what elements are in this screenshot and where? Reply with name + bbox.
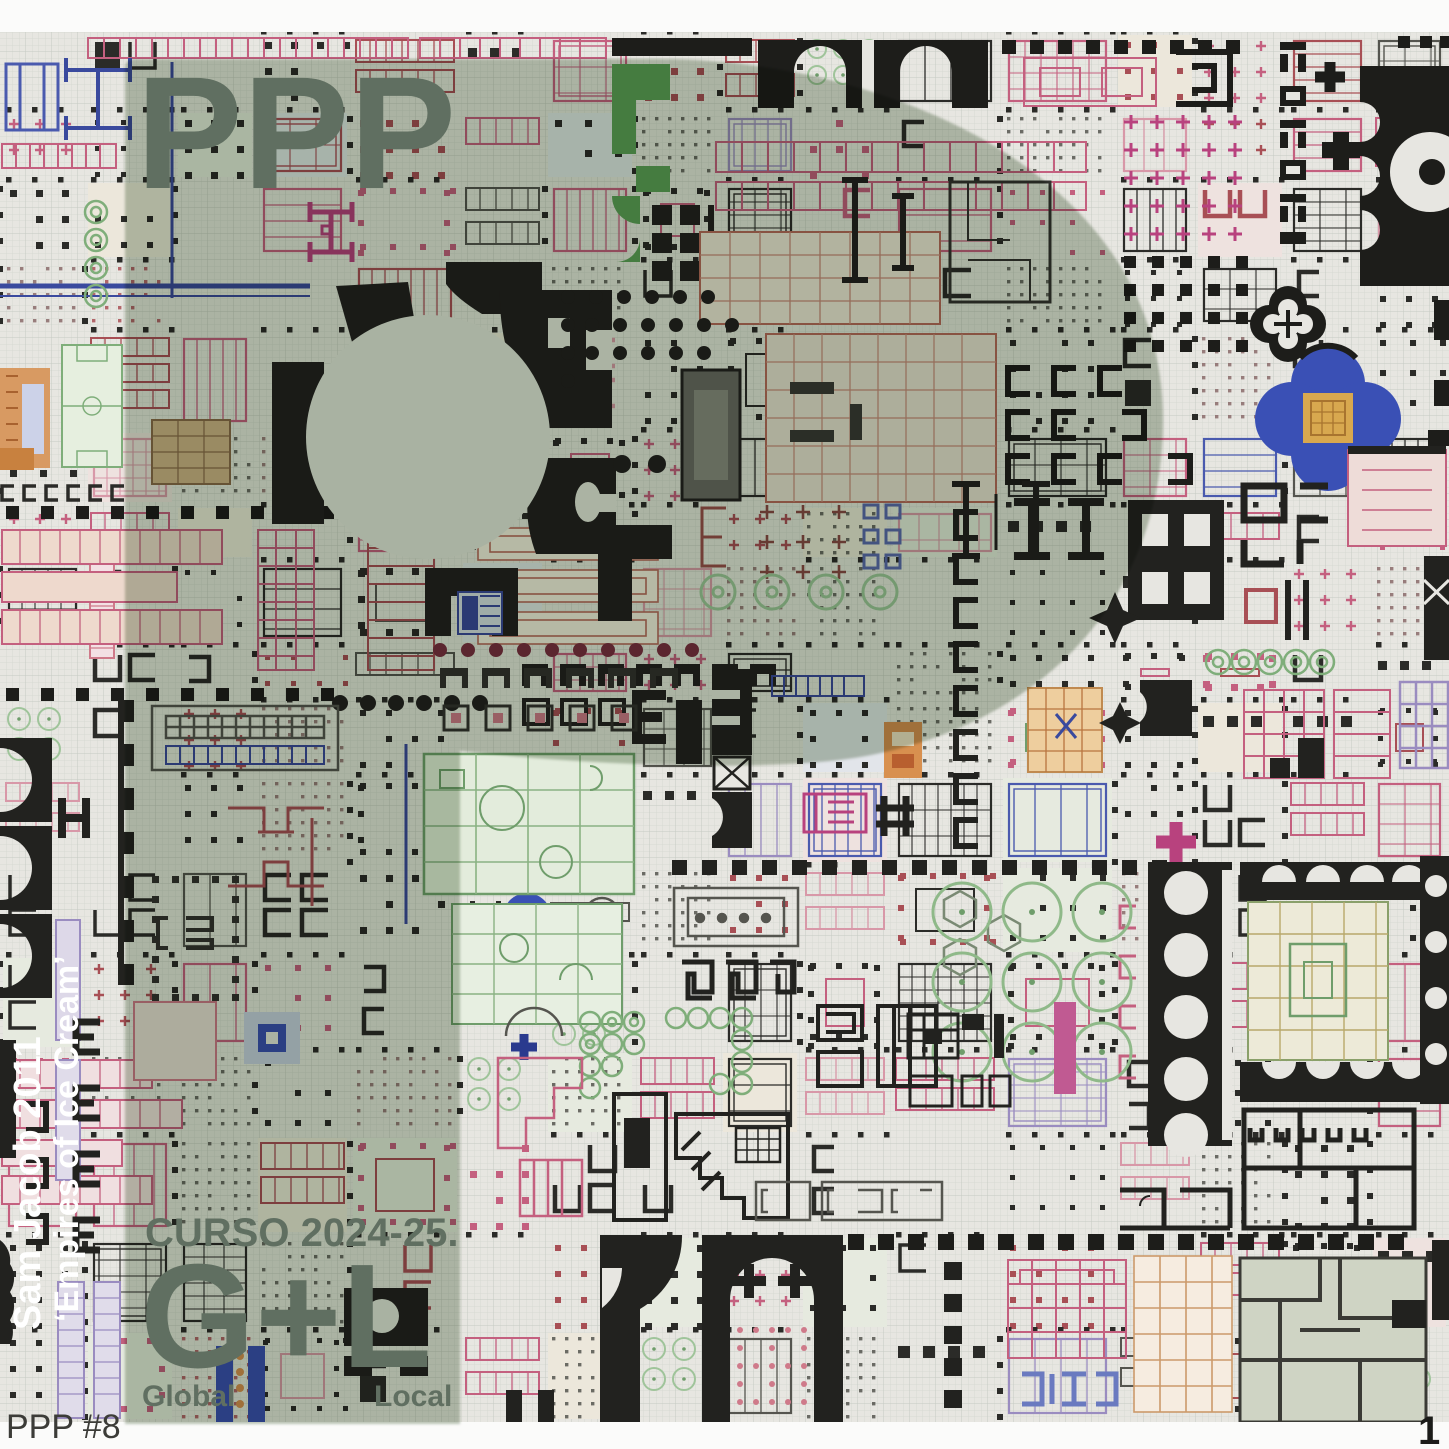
svg-text:PPP #8: PPP #8 [6,1408,121,1446]
svg-text:PPP: PPP [136,43,456,222]
svg-text:Local: Local [374,1380,452,1413]
svg-text:Global: Global [142,1380,235,1413]
svg-text:‘Empires of Ice Cream’: ‘Empires of Ice Cream’ [48,955,86,1322]
svg-text:G+L: G+L [140,1234,432,1399]
svg-text:Sam Jacob 2011: Sam Jacob 2011 [7,1036,49,1330]
svg-text:1: 1 [1418,1409,1440,1449]
